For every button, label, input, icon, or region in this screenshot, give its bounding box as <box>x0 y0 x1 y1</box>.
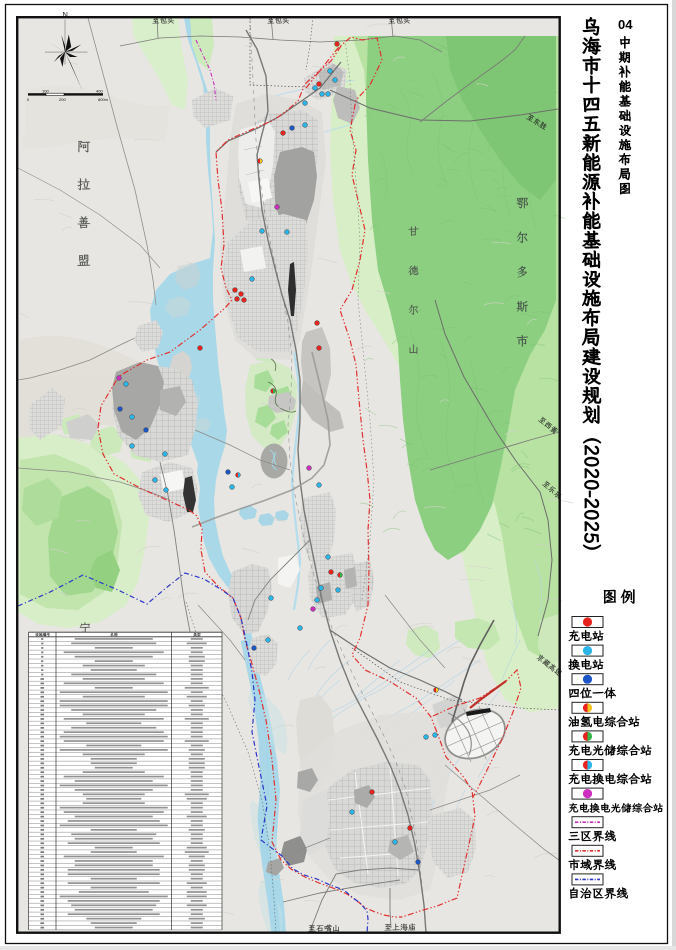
svg-text:400: 400 <box>96 89 103 94</box>
svg-text:100: 100 <box>42 89 49 94</box>
svg-text:200: 200 <box>59 97 66 102</box>
svg-text:800m: 800m <box>98 97 109 102</box>
svg-text:04: 04 <box>618 17 633 32</box>
